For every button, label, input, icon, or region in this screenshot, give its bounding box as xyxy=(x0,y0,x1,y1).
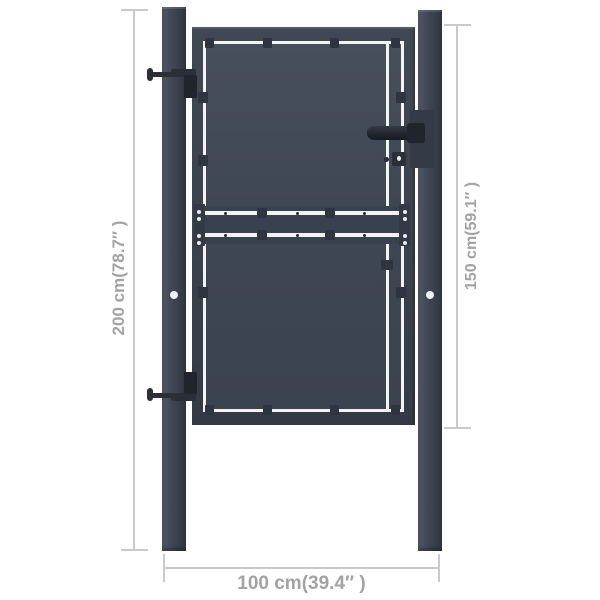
rivet xyxy=(224,212,227,215)
gate-dimension-diagram: 200 cm(78.7″ ) 150 cm(59.1″ ) 100 cm(39.… xyxy=(0,0,600,600)
connector-tab xyxy=(257,230,267,240)
connector-tab xyxy=(198,287,208,298)
dimension-label-total-width: 100 cm(39.4″ ) xyxy=(163,573,440,595)
connector-tab xyxy=(396,92,406,103)
connector-tab xyxy=(325,230,335,240)
gate-hinge-top xyxy=(184,75,197,98)
crossbar-gap-line-bottom xyxy=(203,233,404,237)
bolt-dot xyxy=(403,234,407,238)
handle-mount-block xyxy=(407,123,425,143)
dimension-cap-right-bottom xyxy=(444,427,471,429)
connector-tab xyxy=(325,208,335,218)
bolt-dot xyxy=(403,217,407,221)
rivet xyxy=(363,234,366,237)
rivet xyxy=(296,212,299,215)
gate-hinge-bottom xyxy=(184,372,197,395)
rivet xyxy=(296,234,299,237)
connector-tab xyxy=(396,287,406,298)
connector-tab xyxy=(198,155,208,166)
rivet xyxy=(224,234,227,237)
bolt-dot xyxy=(197,234,201,238)
bolt-dot xyxy=(403,241,407,245)
dimension-label-post-height: 200 cm(78.7″ ) xyxy=(109,221,129,336)
left-post-bolt-hole xyxy=(170,291,178,299)
dimension-label-gate-height: 150 cm(59.1″ ) xyxy=(463,182,481,290)
dimension-line-right xyxy=(456,24,458,429)
dimension-line-left xyxy=(133,9,135,551)
right-post-bolt-hole xyxy=(426,291,434,299)
connector-tab xyxy=(381,260,393,270)
keyhole xyxy=(397,156,401,161)
crossbar-plate-left xyxy=(194,204,205,246)
bolt-dot xyxy=(197,217,201,221)
connector-tab xyxy=(330,38,339,48)
rivet xyxy=(363,212,366,215)
lock-cylinder xyxy=(392,152,406,166)
connector-tab xyxy=(257,208,267,218)
left-post xyxy=(162,7,186,551)
connector-tab xyxy=(391,38,400,48)
connector-tab xyxy=(263,405,272,415)
connector-tab xyxy=(205,405,214,415)
connector-tab xyxy=(263,38,272,48)
bolt-dot xyxy=(197,210,201,214)
connector-tab xyxy=(330,405,339,415)
crossbar-plate-right xyxy=(399,204,410,246)
bolt-dot xyxy=(403,210,407,214)
hinge-pin xyxy=(150,393,186,398)
crossbar-gap-line-top xyxy=(203,211,404,215)
hinge-pin-cap xyxy=(147,388,153,401)
connector-tab xyxy=(391,405,400,415)
connector-tab xyxy=(205,38,214,48)
dimension-line-bottom xyxy=(163,567,440,569)
right-post xyxy=(418,10,442,551)
rivet xyxy=(384,157,389,162)
dimension-cap-left-bottom xyxy=(121,549,148,551)
connector-tab xyxy=(198,92,208,103)
bolt-dot xyxy=(197,241,201,245)
